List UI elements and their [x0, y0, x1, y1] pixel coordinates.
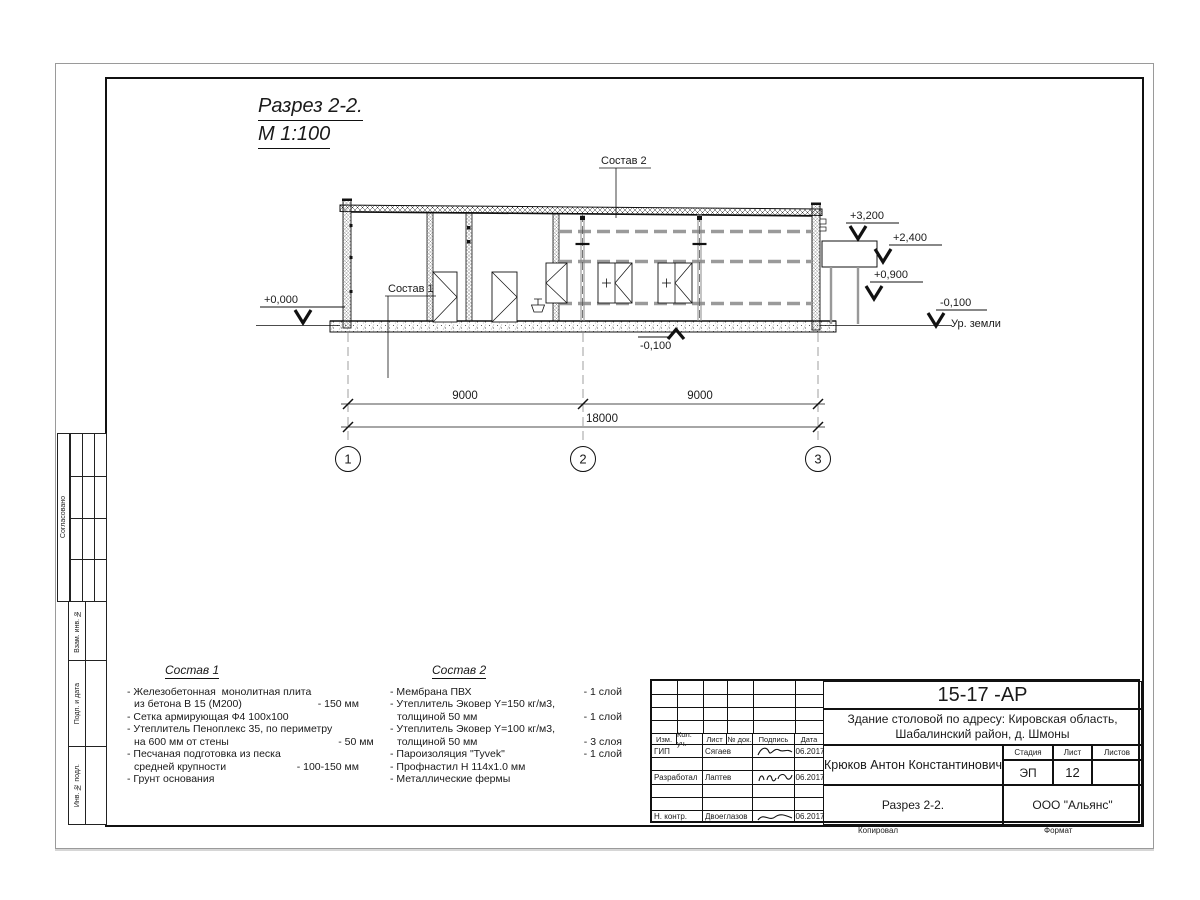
staff-row: Разработал Лаптев 06.2017 — [652, 771, 823, 784]
dim-total: 18000 — [586, 413, 618, 425]
staff-row-empty — [652, 758, 823, 771]
stage-label: Стадия — [1003, 745, 1053, 760]
spec-item: - Песчаная подготовка из пескасредней кр… — [127, 748, 359, 773]
canopy — [822, 241, 877, 324]
doc-number: 15-17 -АР — [823, 681, 1142, 709]
inv-label: Инв. № подл. — [74, 764, 81, 807]
vzam-label: Взам. инв. № — [74, 610, 81, 653]
stamp-vzam: Взам. инв. № — [68, 601, 107, 662]
spec-item: - Профнастил Н 114х1.0 мм — [390, 761, 622, 774]
spec2-title: Состав 2 — [432, 664, 622, 677]
elevation-mark-3200: +3,200 — [846, 210, 899, 239]
elevation-arrow-icon — [295, 310, 311, 323]
sostav1-label: Состав 1 — [388, 283, 434, 295]
sostav2-label: Состав 2 — [601, 155, 647, 167]
axis-bubble-3: 3 — [806, 447, 831, 472]
sheet-value: 12 — [1053, 760, 1092, 785]
spec-item: - Утеплитель Эковер Y=150 кг/м3,толщиной… — [390, 698, 622, 723]
project-name: Здание столовой по адресу: Кировская обл… — [823, 709, 1142, 745]
elevation-arrow-icon — [928, 313, 944, 326]
agreed-label: Согласовано — [60, 496, 67, 538]
door-symbol — [492, 272, 517, 322]
format-label: Формат — [1044, 826, 1072, 835]
svg-text:+0,000: +0,000 — [264, 294, 298, 306]
elevation-mark-ground: -0,100 Ур. земли — [928, 297, 1001, 330]
axis-extension-lines — [348, 333, 818, 445]
title-block: Изм. Кол. уч. Лист № док. Подпись Дата Г… — [650, 679, 1140, 823]
svg-text:-0,100: -0,100 — [940, 297, 971, 309]
drawing-name: Разрез 2-2. — [823, 785, 1003, 825]
svg-text:2: 2 — [579, 452, 586, 467]
signature-icon — [753, 745, 795, 757]
copied-label: Копировал — [858, 826, 898, 835]
author-name: Крюков Антон Константинович — [823, 745, 1003, 785]
axis-bubble-2: 2 — [571, 447, 596, 472]
spec-item: - Утеплитель Эковер Y=100 кг/м3,толщиной… — [390, 723, 622, 748]
svg-text:-0,100: -0,100 — [640, 340, 671, 352]
spec-item: - Сетка армирующая Ф4 100х100 — [127, 711, 359, 724]
spec1-title: Состав 1 — [165, 664, 359, 677]
svg-text:+2,400: +2,400 — [893, 232, 927, 244]
signature-icon — [753, 771, 795, 783]
staff-row: ГИП Сягаев 06.2017 — [652, 745, 823, 758]
stamp-agreed: Согласовано — [57, 433, 107, 602]
spec-list-1: Состав 1 - Железобетонная монолитная пли… — [127, 664, 359, 786]
sink-icon — [532, 299, 545, 312]
elevation-mark-0900: +0,900 — [866, 269, 923, 299]
elevation-mark-2400: +2,400 — [875, 232, 942, 262]
svg-text:+0,900: +0,900 — [874, 269, 908, 281]
ground-level-label: Ур. земли — [951, 318, 1001, 330]
staff-row-empty — [652, 798, 823, 811]
titleblock-header-row: Изм. Кол. уч. Лист № док. Подпись Дата — [652, 733, 823, 745]
spec-item: - Мембрана ПВХ - 1 слой — [390, 686, 622, 699]
spec-item: - Пароизоляция "Tyvek" - 1 слой — [390, 748, 622, 761]
spec-list-2: Состав 2 - Мембрана ПВХ - 1 слой - Утепл… — [390, 664, 622, 786]
sheets-value — [1092, 760, 1142, 785]
podp-label: Подп. и дата — [74, 683, 81, 724]
spec-item: - Металлические фермы — [390, 773, 622, 786]
dim-span1: 9000 — [452, 390, 478, 402]
sheet-label: Лист — [1053, 745, 1092, 760]
axis-bubble-1: 1 — [336, 447, 361, 472]
svg-text:+3,200: +3,200 — [850, 210, 884, 222]
window-symbol — [546, 263, 567, 303]
signature-icon — [753, 811, 795, 823]
company-name: ООО "Альянс" — [1003, 785, 1142, 825]
door-symbol — [433, 272, 457, 322]
staff-row-empty — [652, 785, 823, 798]
sheets-label: Листов — [1092, 745, 1142, 760]
staff-row: Н. контр. Двоеглазов 06.2017 — [652, 811, 823, 823]
titleblock-staff: ГИП Сягаев 06.2017 Разработал Лаптев 06.… — [652, 745, 823, 823]
elevation-mark-zero: +0,000 — [260, 294, 345, 323]
floor-slab — [330, 321, 836, 332]
sheet-canvas: Разрез 2-2. М 1:100 — [0, 0, 1200, 900]
elevation-arrow-icon — [866, 286, 882, 299]
agreed-grid — [70, 434, 106, 601]
dim-span2: 9000 — [687, 390, 713, 402]
left-wall — [342, 199, 353, 329]
spec-item: - Утеплитель Пеноплекс 35, по периметрун… — [127, 723, 359, 748]
elevation-mark-floor: -0,100 — [638, 330, 684, 353]
window-symbol — [598, 263, 632, 303]
spec-item: - Грунт основания — [127, 773, 359, 786]
stamp-podp: Подп. и дата — [68, 660, 107, 748]
svg-text:3: 3 — [814, 452, 821, 467]
svg-text:1: 1 — [344, 452, 351, 467]
spec-item: - Железобетонная монолитная плитаиз бето… — [127, 686, 359, 711]
window-symbol — [658, 263, 692, 303]
stage-value: ЭП — [1003, 760, 1053, 785]
stamp-inv: Инв. № подл. — [68, 746, 107, 825]
elevation-arrow-icon — [850, 226, 866, 239]
